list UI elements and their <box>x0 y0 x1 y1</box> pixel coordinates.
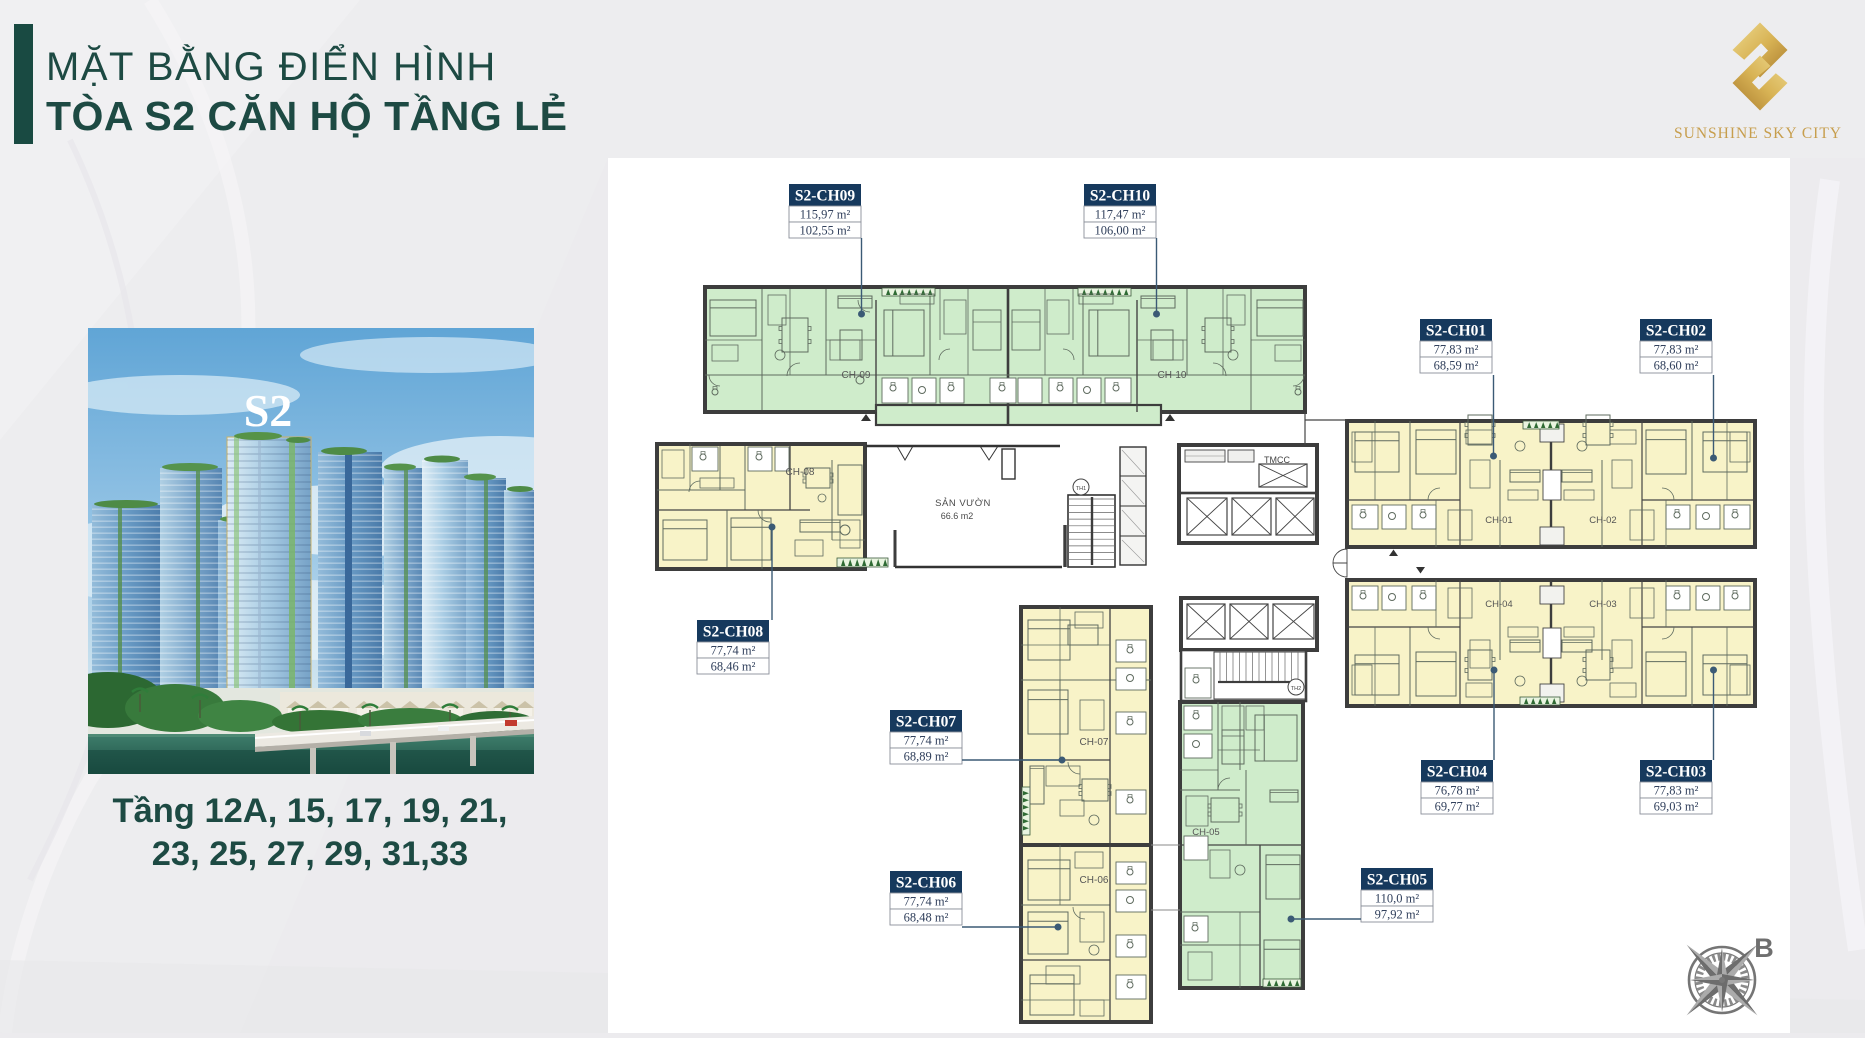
svg-text:CH-08: CH-08 <box>786 467 815 478</box>
svg-text:68,59 m²: 68,59 m² <box>1434 359 1479 373</box>
svg-text:CH-07: CH-07 <box>1080 737 1109 748</box>
svg-text:102,55 m²: 102,55 m² <box>800 224 851 238</box>
svg-text:23, 25, 27, 29, 31,33: 23, 25, 27, 29, 31,33 <box>152 835 469 873</box>
svg-text:68,48 m²: 68,48 m² <box>904 911 949 925</box>
svg-text:S2-CH08: S2-CH08 <box>703 624 764 641</box>
svg-text:S2-CH06: S2-CH06 <box>896 875 957 892</box>
svg-text:77,83 m²: 77,83 m² <box>1654 784 1699 798</box>
svg-text:CH-09: CH-09 <box>842 370 871 381</box>
svg-text:TH1: TH1 <box>1076 486 1086 492</box>
svg-text:77,74 m²: 77,74 m² <box>711 644 756 658</box>
svg-text:CH-06: CH-06 <box>1080 875 1109 886</box>
svg-text:S2-CH05: S2-CH05 <box>1367 872 1428 889</box>
svg-text:TH2: TH2 <box>1291 686 1301 692</box>
svg-text:MẶT BẰNG ĐIỂN HÌNH: MẶT BẰNG ĐIỂN HÌNH <box>46 42 497 89</box>
svg-text:69,77 m²: 69,77 m² <box>1435 800 1480 814</box>
svg-text:CH-03: CH-03 <box>1589 599 1616 610</box>
svg-text:69,03 m²: 69,03 m² <box>1654 800 1699 814</box>
svg-text:SUNSHINE SKY CITY: SUNSHINE SKY CITY <box>1674 125 1842 142</box>
svg-text:CH-02: CH-02 <box>1589 515 1616 526</box>
svg-text:B: B <box>1754 933 1774 963</box>
svg-text:S2-CH10: S2-CH10 <box>1090 188 1151 205</box>
svg-text:68,46 m²: 68,46 m² <box>711 660 756 674</box>
svg-text:S2-CH02: S2-CH02 <box>1646 323 1707 340</box>
svg-text:CH-10: CH-10 <box>1158 370 1187 381</box>
svg-text:115,97 m²: 115,97 m² <box>800 208 851 222</box>
svg-text:S2-CH01: S2-CH01 <box>1426 323 1486 340</box>
svg-text:SẢN VƯỜN: SẢN VƯỜN <box>935 497 991 509</box>
svg-text:CH-01: CH-01 <box>1485 515 1512 526</box>
svg-text:CH-05: CH-05 <box>1192 827 1219 838</box>
svg-text:Tầng 12A, 15, 17, 19, 21,: Tầng 12A, 15, 17, 19, 21, <box>112 792 507 830</box>
svg-text:66.6 m2: 66.6 m2 <box>941 511 974 521</box>
svg-text:S2-CH04: S2-CH04 <box>1427 764 1488 781</box>
svg-text:77,83 m²: 77,83 m² <box>1654 343 1699 357</box>
svg-text:S2-CH07: S2-CH07 <box>896 714 957 731</box>
svg-text:S2: S2 <box>244 385 293 436</box>
svg-text:76,78 m²: 76,78 m² <box>1435 784 1480 798</box>
svg-text:97,92 m²: 97,92 m² <box>1375 908 1420 922</box>
svg-text:77,83 m²: 77,83 m² <box>1434 343 1479 357</box>
svg-text:CH-04: CH-04 <box>1485 599 1512 610</box>
svg-text:117,47 m²: 117,47 m² <box>1095 208 1146 222</box>
svg-text:68,60 m²: 68,60 m² <box>1654 359 1699 373</box>
svg-text:106,00 m²: 106,00 m² <box>1095 224 1146 238</box>
svg-text:TÒA S2 CĂN HỘ TẦNG LẺ: TÒA S2 CĂN HỘ TẦNG LẺ <box>46 93 568 139</box>
svg-text:77,74 m²: 77,74 m² <box>904 734 949 748</box>
svg-text:S2-CH03: S2-CH03 <box>1646 764 1707 781</box>
svg-text:S2-CH09: S2-CH09 <box>795 188 856 205</box>
svg-text:110,0 m²: 110,0 m² <box>1375 892 1420 906</box>
svg-text:77,74 m²: 77,74 m² <box>904 895 949 909</box>
svg-text:68,89 m²: 68,89 m² <box>904 750 949 764</box>
